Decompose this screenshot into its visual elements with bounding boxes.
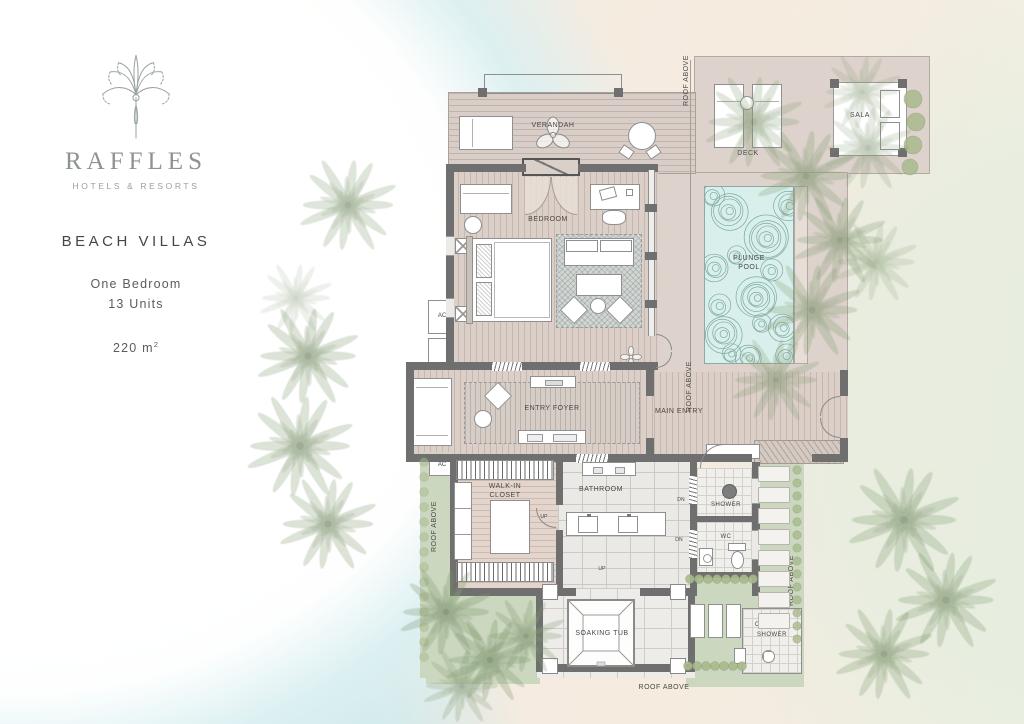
- dn-label: DN: [677, 497, 685, 503]
- floorplan-page: RAFFLES HOTELS & RESORTS BEACH VILLAS On…: [0, 0, 1024, 724]
- up-label: UP: [598, 566, 605, 572]
- stepping-stone: [758, 550, 790, 566]
- sala-label: SALA: [850, 112, 870, 119]
- sala-cushion: [880, 90, 900, 118]
- plunge-pool-label-1: PLUNGE: [733, 255, 765, 262]
- dn-label: DN: [675, 537, 683, 543]
- roof-post: [614, 88, 623, 97]
- bed-duvet: [494, 242, 550, 318]
- desk-item: [626, 189, 633, 196]
- planter: [708, 604, 723, 638]
- deck-side-table: [740, 96, 754, 110]
- courtyard-garden: [426, 588, 540, 684]
- up-label: UP: [540, 514, 547, 520]
- ac-label: AC: [438, 313, 446, 319]
- planter: [726, 604, 741, 638]
- stepping-stone: [758, 571, 790, 587]
- area-value: 220 m: [113, 341, 154, 355]
- outdoor-shower-drain-icon: [762, 650, 775, 663]
- folding-door: [580, 362, 610, 371]
- sun-lounger: [752, 84, 782, 148]
- bedroom-label: BEDROOM: [528, 216, 568, 223]
- ac-label: AC: [438, 462, 446, 468]
- outdoor-shower-step: [734, 648, 746, 664]
- sala-cushion: [880, 122, 900, 150]
- deck-label: DECK: [737, 150, 758, 157]
- verandah-lounger: [459, 116, 513, 150]
- roof-above-label-bottom: ROOF ABOVE: [639, 684, 690, 691]
- stepping-stone: [758, 508, 790, 524]
- raffles-palm-logo-icon: [90, 44, 182, 144]
- coffee-table: [576, 274, 622, 296]
- sink: [578, 516, 598, 533]
- shower-head-icon: [722, 484, 737, 499]
- unit-type: One Bedroom: [32, 274, 240, 294]
- sun-lounger: [714, 84, 744, 148]
- roof-above-label-left: ROOF ABOVE: [431, 501, 438, 552]
- bathroom-console: [582, 462, 636, 476]
- soaking-tub-label: SOAKING TUB: [575, 630, 628, 637]
- area-exponent: 2: [154, 340, 159, 349]
- bedroom-stool: [464, 216, 482, 234]
- main-entry-label: MAIN ENTRY: [655, 408, 703, 415]
- bathroom-label: BATHROOM: [579, 486, 623, 493]
- closet-island: [490, 500, 530, 554]
- roof-post: [478, 88, 487, 97]
- folding-door: [492, 362, 522, 371]
- roof-edge-line: [690, 60, 691, 372]
- pool-ripples: [704, 186, 794, 364]
- shower-label: SHOWER: [711, 502, 741, 508]
- walk-in-closet-label-2: CLOSET: [489, 492, 520, 499]
- bed-pillow: [476, 244, 492, 278]
- roof-above-label-top: ROOF ABOVE: [683, 55, 690, 106]
- plan-title: BEACH VILLAS: [32, 233, 240, 250]
- roof-above-label-entry: ROOF ABOVE: [686, 361, 693, 412]
- closet-rack: [456, 562, 554, 582]
- walk-in-closet-label-1: WALK-IN: [489, 483, 521, 490]
- unit-description: One Bedroom 13 Units: [32, 274, 240, 314]
- pool-coping: [794, 186, 808, 364]
- foyer-daybed: [412, 378, 452, 446]
- foyer-console-bottom: [518, 430, 586, 444]
- toilet-tank: [728, 543, 746, 551]
- desk-chair: [602, 210, 626, 225]
- entry-foyer-label: ENTRY FOYER: [524, 405, 579, 412]
- stepping-stone: [758, 529, 790, 545]
- foyer-table: [474, 410, 492, 428]
- sofa-cushion: [566, 240, 598, 252]
- sliding-door: [522, 158, 580, 176]
- wc-sink: [699, 548, 713, 566]
- stepping-stone: [758, 592, 790, 608]
- bed-pillow: [476, 282, 492, 316]
- wc-label: WC: [721, 534, 732, 540]
- bedroom-bench: [460, 184, 512, 214]
- plunge-pool-label-2: POOL: [738, 264, 759, 271]
- sink: [618, 516, 638, 533]
- stepping-stone: [758, 487, 790, 503]
- sofa-cushion: [600, 240, 632, 252]
- roof-outline: [484, 74, 622, 94]
- brand-panel: RAFFLES HOTELS & RESORTS BEACH VILLAS On…: [32, 44, 240, 355]
- verandah-label: VERANDAH: [532, 122, 575, 129]
- outdoor-shower-label-2: SHOWER: [757, 632, 787, 638]
- stepping-stone: [758, 613, 790, 629]
- toilet-bowl: [731, 551, 744, 569]
- wardrobe: [454, 482, 472, 560]
- closet-rack: [456, 460, 554, 480]
- brand-name: RAFFLES: [32, 148, 240, 176]
- side-table: [590, 298, 606, 314]
- foyer-console-top: [530, 376, 576, 388]
- stepping-stone: [758, 466, 790, 482]
- planter: [690, 604, 705, 638]
- area-label: 220 m2: [32, 340, 240, 355]
- brand-tagline: HOTELS & RESORTS: [32, 181, 240, 191]
- unit-count: 13 Units: [32, 294, 240, 314]
